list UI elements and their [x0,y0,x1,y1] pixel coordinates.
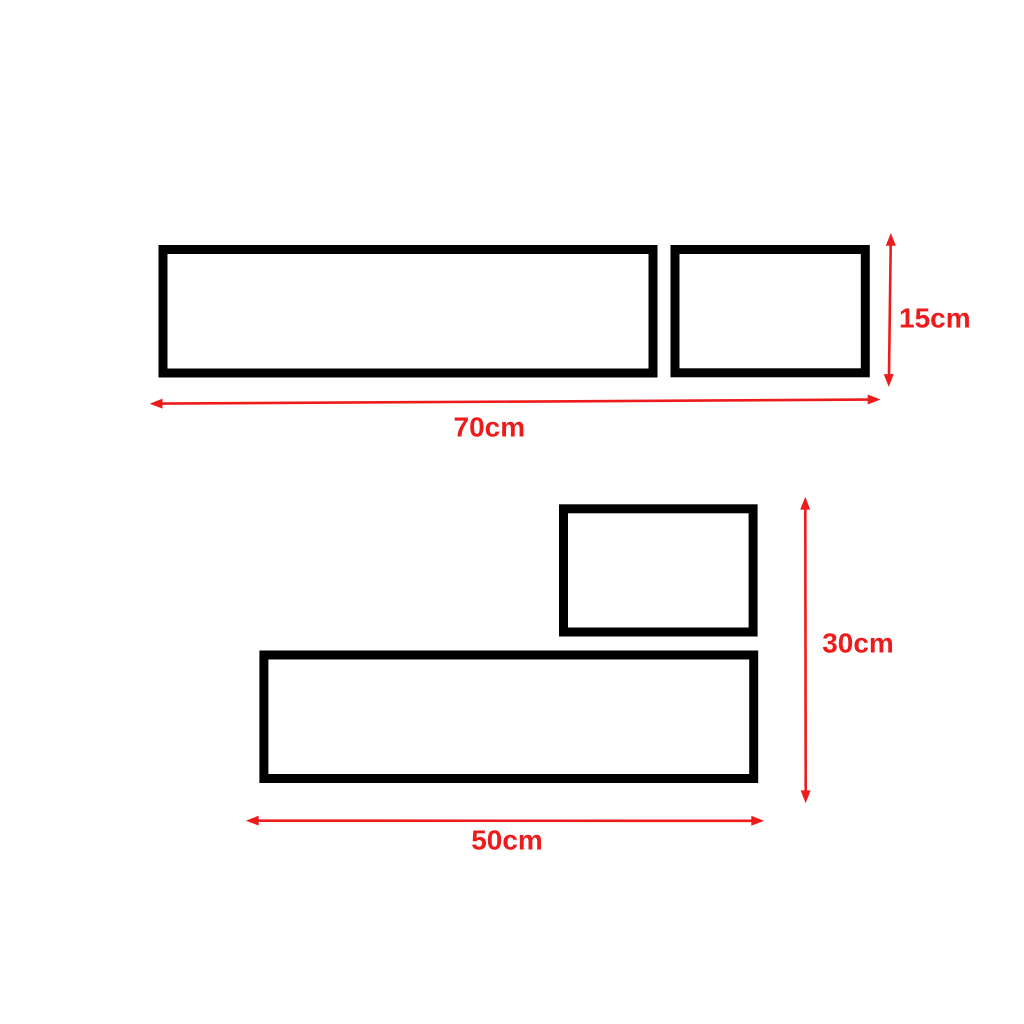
svg-text:30cm: 30cm [822,627,894,658]
svg-text:50cm: 50cm [471,824,543,855]
svg-text:70cm: 70cm [454,412,526,443]
svg-text:15cm: 15cm [899,302,971,333]
